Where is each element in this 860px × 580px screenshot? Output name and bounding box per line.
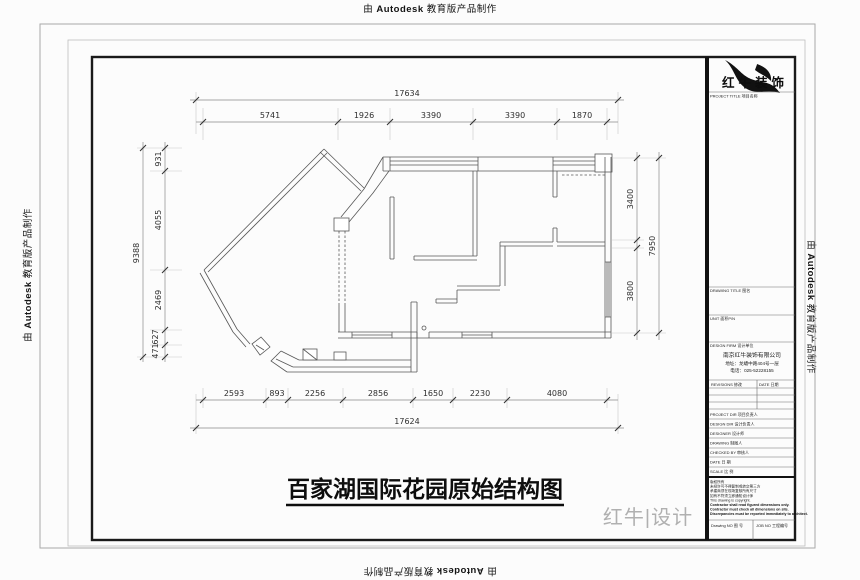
floor-plan — [200, 149, 612, 372]
dim-label: 471 — [151, 343, 160, 358]
dim-label: 17634 — [394, 89, 419, 98]
plan-title-group: 百家湖国际花园原始结构图 — [286, 476, 564, 505]
dim-label: 2856 — [368, 389, 388, 398]
dim-label: 17624 — [394, 417, 419, 426]
dim-label: 3800 — [626, 281, 635, 301]
dim-label: 1870 — [572, 111, 592, 120]
dim-left: 931 4055 2469 627 471 9388 — [132, 142, 168, 362]
dim-label: 2469 — [154, 290, 163, 310]
dim-top: 17634 5741 1926 3390 3390 1870 — [190, 89, 624, 125]
dim-label: 7950 — [648, 236, 657, 256]
personnel-row: PROJECT DIR 项目负责人 — [710, 411, 758, 417]
company-brand-name: 红牛装饰 — [722, 75, 788, 90]
company-address: 地址：龙蟠中路404号一层 — [725, 360, 779, 367]
dashed-wall — [339, 231, 345, 303]
extension-lines — [137, 92, 666, 434]
personnel-row: SCALE 比 例 — [710, 468, 733, 474]
plan-title: 百家湖国际花园原始结构图 — [287, 476, 563, 502]
window-top-right — [553, 157, 597, 171]
dim-label: 893 — [269, 389, 284, 398]
personnel-row: DATE 日 期 — [710, 459, 731, 465]
flue — [252, 337, 270, 355]
personnel-row: DESIGNER 设计师 — [710, 430, 744, 436]
dim-label: 4055 — [154, 210, 163, 230]
note-line: 未经许可不得复制或转交第三方 — [710, 484, 761, 489]
dim-label: 2230 — [470, 389, 490, 398]
company-phone: 电话：025-52228155 — [730, 367, 774, 374]
dim-label: 5741 — [260, 111, 280, 120]
dim-label: 1650 — [423, 389, 443, 398]
note-line: 如有不符须立即通知设计师 — [710, 493, 754, 498]
note-line: 版权所有 — [710, 479, 725, 484]
dim-label: 2593 — [224, 389, 244, 398]
wall-post — [334, 218, 349, 231]
drawing-sheet: 17634 5741 1926 3390 3390 1870 2593 893 … — [0, 0, 860, 580]
window-top-left — [390, 157, 478, 171]
design-firm-label: DESIGN FIRM 设计单位 — [710, 342, 753, 348]
dim-label: 931 — [154, 151, 163, 166]
title-block: 红牛装饰 PROJECT TITLE 项目名称 DRAWING TITLE 图名… — [709, 60, 808, 540]
company-name: 南京红牛装饰有限公司 — [723, 351, 781, 359]
column — [595, 154, 612, 172]
note-line: Contractor shall read figured dimensions… — [710, 503, 789, 507]
unit-label: UNIT 面积P/N — [710, 315, 735, 321]
personnel-row: DRAWING 制图人 — [710, 440, 742, 446]
sheet-borders — [40, 24, 815, 548]
dim-label: 1926 — [354, 111, 374, 120]
brand-signature: 红牛|设计 — [603, 506, 693, 529]
personnel-row: CHECKED BY 审核人 — [710, 449, 749, 455]
dim-right: 3400 3800 7950 — [626, 152, 662, 340]
personnel-row: DESIGN DIR 设计负责人 — [710, 421, 754, 427]
dim-label: 3390 — [505, 111, 525, 120]
dim-label: 3390 — [421, 111, 441, 120]
note-line: This drawing is copyright. — [710, 498, 751, 502]
note-line: Discrepancies must be reported immediate… — [710, 512, 808, 516]
dim-label: 3400 — [626, 189, 635, 209]
date-col-label: DATE 日期 — [759, 381, 778, 387]
dim-bottom: 2593 893 2256 2856 1650 2230 4080 17624 — [190, 389, 624, 431]
drawing-no-label: Drawing NO 图 号 — [711, 522, 743, 528]
drawing-title-label: DRAWING TITLE 图名 — [710, 287, 750, 293]
revisions-label: REVISIONS 修改 — [711, 381, 742, 387]
note-line: Contractor must check all dimensions on … — [710, 508, 789, 512]
dim-label: 9388 — [132, 243, 141, 263]
job-no-label: JOB NO 工程编号 — [756, 522, 788, 528]
dim-label: 2256 — [305, 389, 325, 398]
door-symbol — [422, 326, 426, 330]
dim-label: 627 — [151, 329, 160, 344]
dim-label: 4080 — [547, 389, 567, 398]
note-line: 承建商须在现场复核所有尺寸 — [710, 488, 757, 493]
project-title-label: PROJECT TITLE 项目名称 — [710, 93, 758, 99]
window-right — [605, 262, 611, 317]
